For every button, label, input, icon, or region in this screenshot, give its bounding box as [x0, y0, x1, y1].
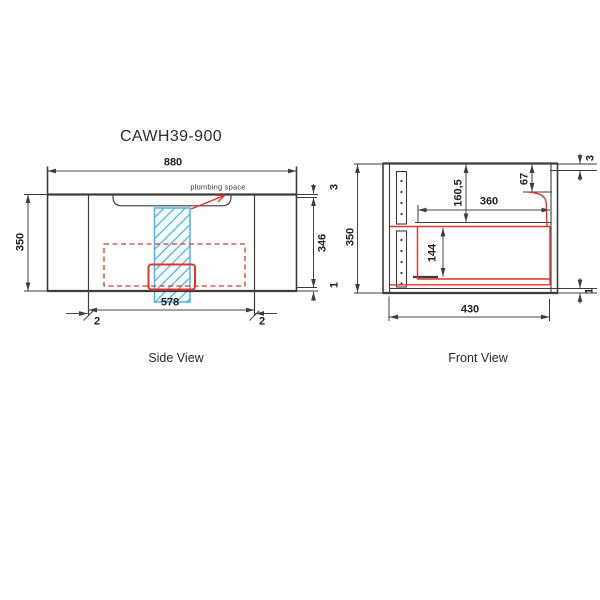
- side-dim-top-thickness: 3: [330, 184, 341, 190]
- front-dim-top-gap: 3: [586, 155, 597, 161]
- front-dim-overall-height: 350: [346, 228, 357, 246]
- front-view-linework: [354, 163, 597, 321]
- front-dim-upper-section: 160,5: [454, 179, 465, 207]
- front-dim-bottom-width: 430: [461, 305, 479, 316]
- front-dim-bottom-gap: 1: [585, 288, 596, 294]
- front-dim-top-section: 67: [520, 173, 531, 185]
- side-dim-inner-width: 578: [161, 298, 179, 309]
- drawing-title: CAWH39-900: [120, 129, 222, 145]
- side-view-plumbing-zone: [155, 208, 191, 302]
- front-view-rail-holes: [400, 180, 402, 285]
- side-dim-left-panel-gap: 2: [94, 317, 100, 328]
- front-view-caption: Front View: [448, 352, 508, 365]
- front-view-red-overlay: [390, 192, 550, 284]
- drawing-linework: [0, 0, 600, 600]
- side-view-caption: Side View: [148, 352, 203, 365]
- side-dim-bottom-gap: 1: [330, 282, 341, 288]
- side-dim-right-panel-gap: 2: [259, 317, 265, 328]
- plumbing-space-annotation: plumbing space: [190, 183, 245, 191]
- front-dim-drawer-height: 144: [428, 244, 439, 262]
- side-dim-overall-height: 350: [16, 233, 27, 251]
- side-dim-overall-width: 880: [164, 158, 182, 169]
- drawing-area: CAWH39-900 880 350 578 2 2 3 346 1 plumb…: [0, 0, 600, 600]
- side-dim-inner-height: 346: [318, 234, 329, 252]
- front-dim-opening-width: 360: [480, 197, 498, 208]
